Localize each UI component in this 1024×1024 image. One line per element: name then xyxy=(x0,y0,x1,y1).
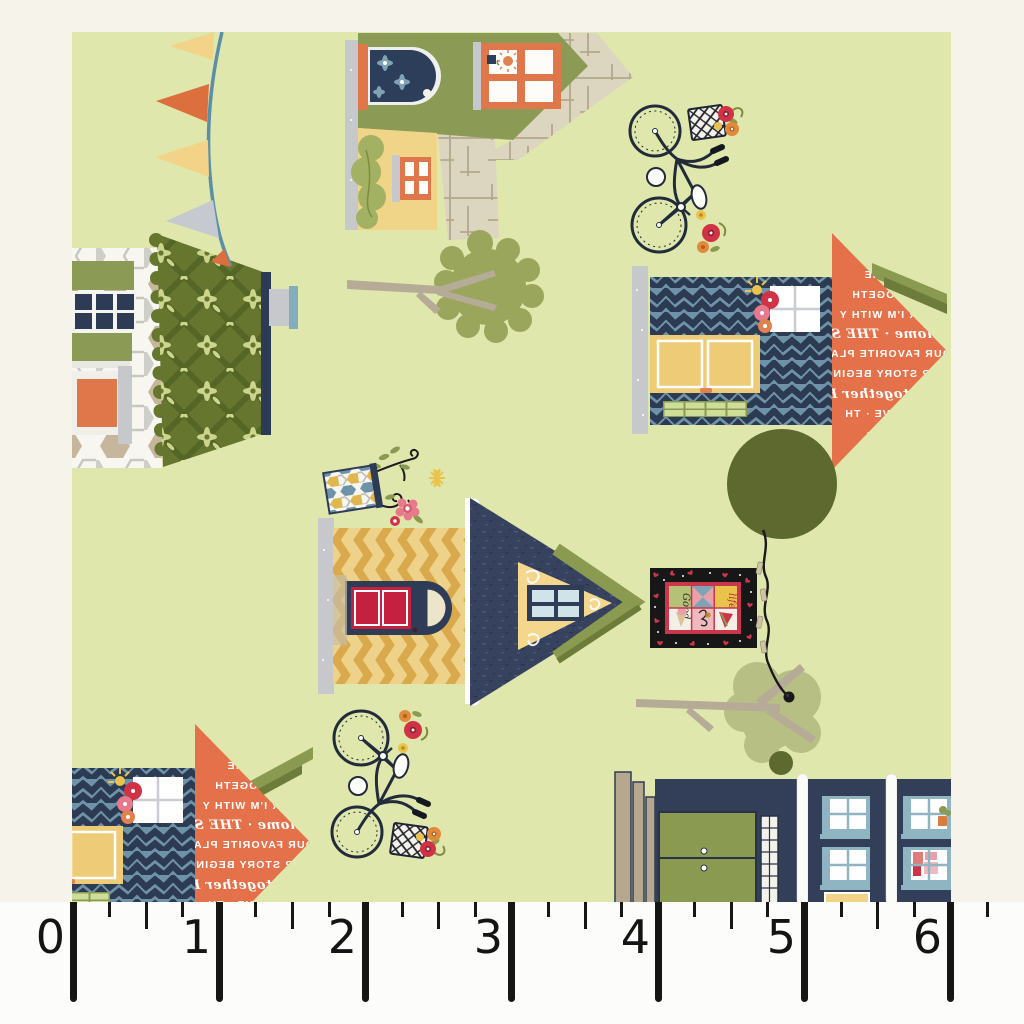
ruler-tick-major xyxy=(655,902,662,1002)
ruler-tick-minor xyxy=(145,902,148,929)
window-with-plant xyxy=(901,796,951,839)
ruler-number: 5 xyxy=(748,914,796,960)
fabric-swatch-photo: WH · HOME LL TOGETH VER I'M WITH Y T hom… xyxy=(0,0,1024,1024)
ruler-tick-minor xyxy=(584,902,587,929)
ruler xyxy=(0,902,1024,1024)
pinwheel-block xyxy=(692,586,715,608)
orange-window-large xyxy=(481,43,561,109)
ruler-number: 6 xyxy=(894,914,942,960)
ruler-tick-minor xyxy=(108,902,111,917)
round-tree-small xyxy=(769,751,793,775)
ruler-tick-major xyxy=(70,902,77,1002)
window xyxy=(820,847,870,890)
ruler-tick-minor xyxy=(693,902,696,917)
orange-window-small xyxy=(400,157,431,200)
round-tree xyxy=(727,429,837,539)
red-door xyxy=(351,587,411,629)
ruler-number: 2 xyxy=(309,914,357,960)
ruler-tick-minor xyxy=(437,902,440,929)
orange-door xyxy=(77,379,117,427)
ruler-tick-major xyxy=(801,902,808,1002)
ruler-number: 1 xyxy=(163,914,211,960)
ruler-tick-minor xyxy=(401,902,404,917)
ruler-number: 3 xyxy=(455,914,503,960)
ruler-tick-minor xyxy=(986,902,989,917)
ruler-number: 4 xyxy=(602,914,650,960)
ruler-tick-minor xyxy=(547,902,550,917)
chimney xyxy=(269,289,291,326)
ruler-tick-minor xyxy=(876,902,879,929)
ruler-tick-minor xyxy=(254,902,257,917)
ruler-tick-minor xyxy=(730,902,733,929)
string-end-ball xyxy=(784,692,795,703)
ruler-tick-major xyxy=(216,902,223,1002)
ruler-tick-minor xyxy=(840,902,843,917)
ruler-tick-minor xyxy=(291,902,294,929)
window xyxy=(820,796,870,839)
ruler-tick-major xyxy=(362,902,369,1002)
ruler-tick-major xyxy=(508,902,515,1002)
fabric-illustration: WH · HOME LL TOGETH VER I'M WITH Y T hom… xyxy=(0,0,1024,1024)
window-with-quilts xyxy=(901,847,951,890)
ruler-tick-major xyxy=(947,902,954,1002)
quilt-word: life xyxy=(726,593,737,609)
ruler-number: 0 xyxy=(17,914,65,960)
storefront-row xyxy=(615,772,953,905)
